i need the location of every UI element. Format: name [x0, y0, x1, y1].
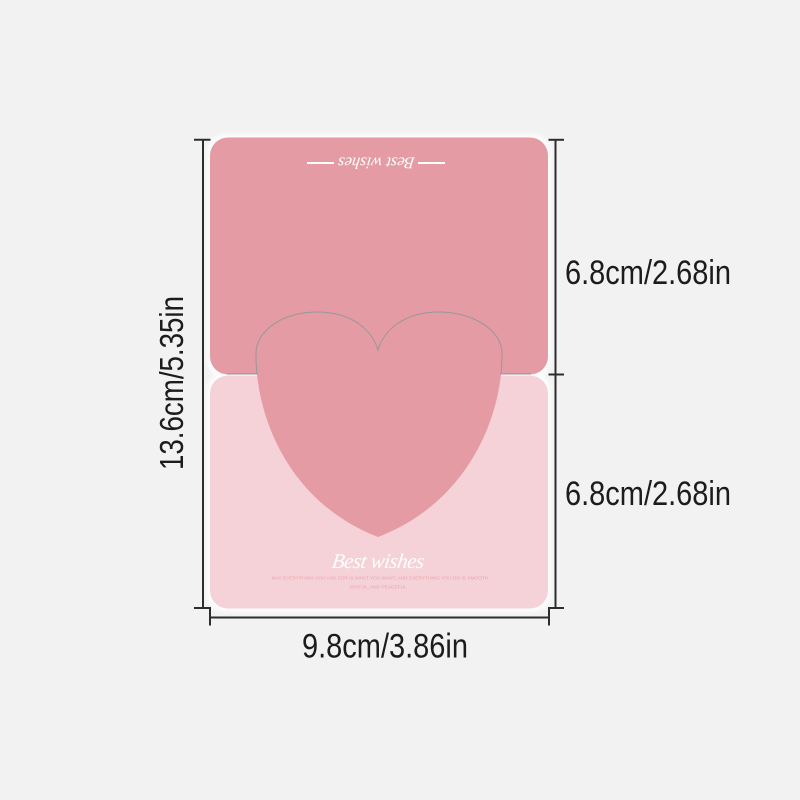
svg-text:13.6cm/5.35in: 13.6cm/5.35in: [153, 296, 190, 470]
svg-text:MAY EVERYTHING YOU ASK FOR IS: MAY EVERYTHING YOU ASK FOR IS WHAT YOU W…: [272, 576, 489, 582]
svg-text:9.8cm/3.86in: 9.8cm/3.86in: [302, 628, 468, 666]
svg-text:JOYFUL, AND PEACEFUL: JOYFUL, AND PEACEFUL: [349, 585, 407, 591]
svg-text:Best wishes: Best wishes: [337, 154, 416, 173]
svg-text:6.8cm/2.68in: 6.8cm/2.68in: [565, 475, 731, 513]
svg-text:6.8cm/2.68in: 6.8cm/2.68in: [565, 254, 731, 292]
svg-text:Best wishes: Best wishes: [330, 549, 426, 573]
